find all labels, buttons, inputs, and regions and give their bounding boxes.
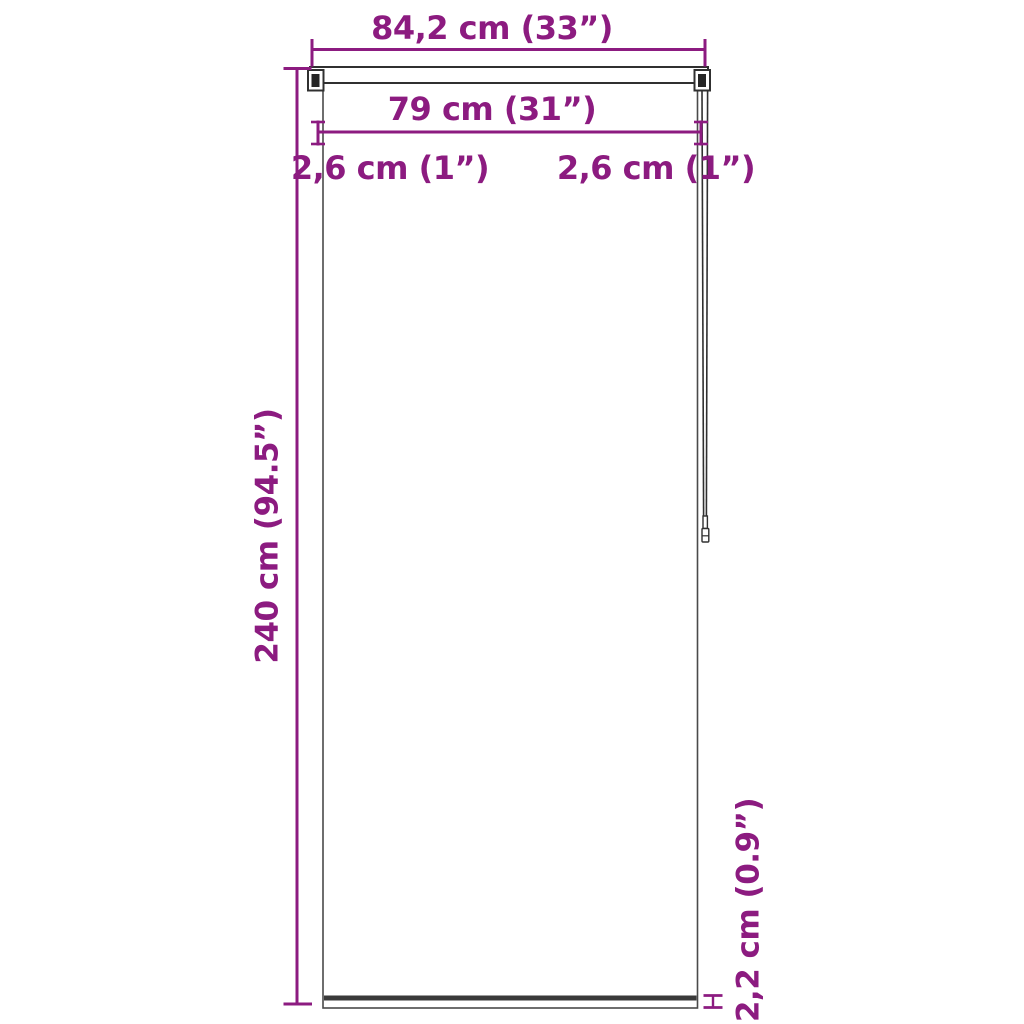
- fabric-panel: [323, 83, 698, 1008]
- bottom-weight-bar: [324, 996, 697, 1001]
- label-bottom-bar-height: 2,2 cm (0.9”): [734, 798, 765, 1022]
- cord-connector: [703, 516, 707, 529]
- label-left-bracket-offset: 2,6 cm (1”): [291, 152, 489, 184]
- label-fabric-width: 79 cm (31”): [388, 93, 596, 125]
- bracket-right: [695, 70, 711, 91]
- roller-blind-drawing: [0, 0, 1024, 1024]
- diagram-canvas: 84,2 cm (33”) 79 cm (31”) 2,6 cm (1”) 2,…: [0, 0, 1024, 1024]
- label-right-bracket-offset: 2,6 cm (1”): [557, 152, 755, 184]
- bracket-left: [308, 70, 324, 91]
- label-total-height: 240 cm (94.5”): [253, 408, 284, 663]
- dimension-bottom-bar: [704, 996, 723, 1008]
- dimension-total-height: [284, 68, 313, 1005]
- label-total-width: 84,2 cm (33”): [371, 12, 613, 44]
- headrail: [310, 67, 708, 83]
